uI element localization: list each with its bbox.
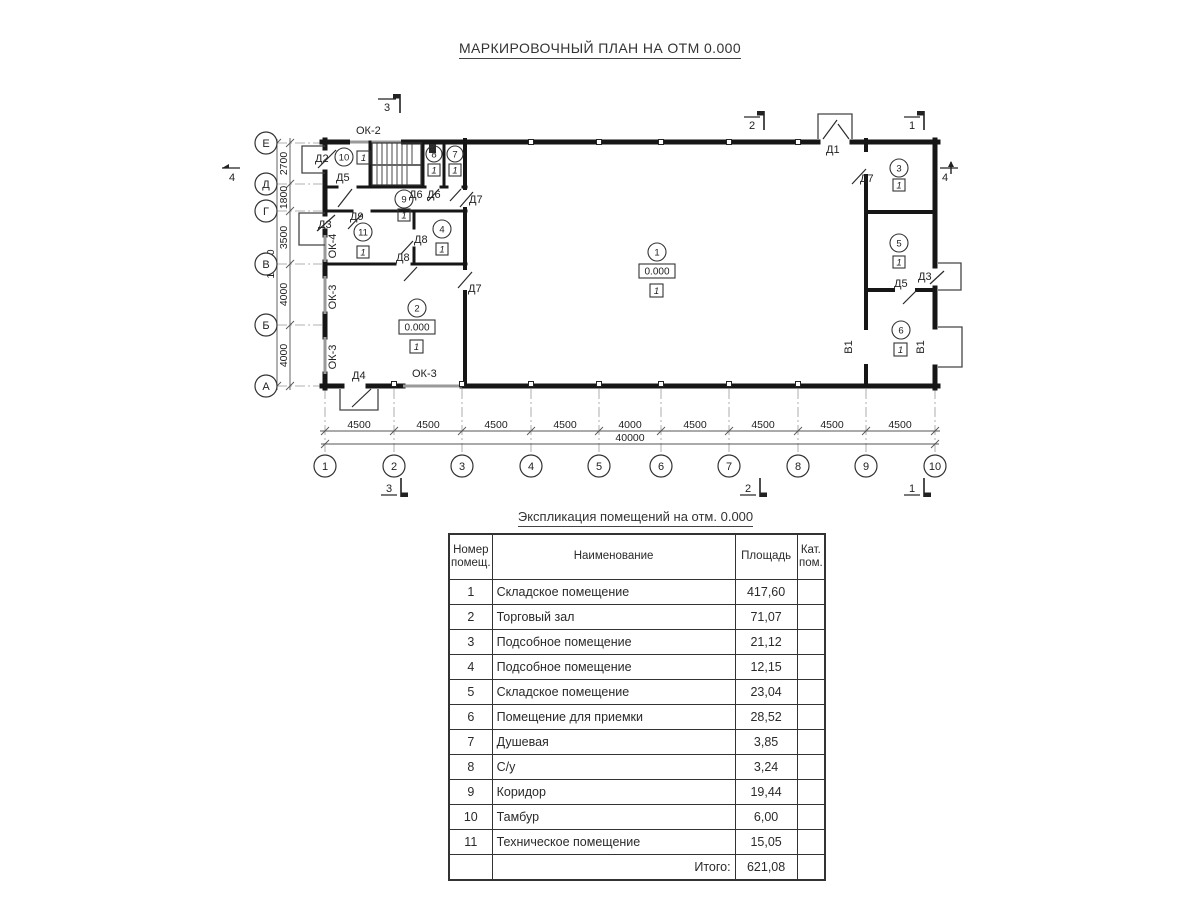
- dim-col-8: 4500: [888, 419, 912, 431]
- marker-10: 1: [361, 153, 366, 164]
- table-row: 9Коридор19,44: [449, 780, 825, 805]
- cell-name: Подсобное помещение: [492, 630, 735, 655]
- room-number-3: 3: [896, 164, 901, 175]
- table-row: 5Складское помещение23,04: [449, 680, 825, 705]
- header-room-number: Номер помещ.: [449, 534, 492, 580]
- marker-5: 1: [896, 258, 901, 269]
- room-number-9: 9: [401, 195, 406, 206]
- table-row: 6Помещение для приемки28,52: [449, 705, 825, 730]
- cell-cat: [797, 755, 825, 780]
- cell-area: 15,05: [735, 830, 797, 855]
- header-name: Наименование: [492, 534, 735, 580]
- grid-col-2: 2: [391, 461, 397, 473]
- stairs: [372, 143, 421, 185]
- room-number-6: 6: [898, 326, 903, 337]
- section-2-bottom: 2: [745, 483, 751, 495]
- marker-6: 1: [898, 345, 903, 356]
- cell-num: 11: [449, 830, 492, 855]
- cell-area: 417,60: [735, 580, 797, 605]
- dim-row-3: 4000: [278, 283, 290, 307]
- cell-name: Подсобное помещение: [492, 655, 735, 680]
- total-label: Итого:: [492, 855, 735, 881]
- door-label-d8-a: Д8: [414, 234, 428, 246]
- cell-num: 8: [449, 755, 492, 780]
- room-number-4: 4: [439, 225, 444, 236]
- dim-row-1: 1800: [278, 186, 290, 210]
- dimension-texts: 2700 1800 3500 4000 4000 16000 4500 4500…: [265, 152, 912, 444]
- cell-name: Коридор: [492, 780, 735, 805]
- dim-col-3: 4500: [553, 419, 577, 431]
- door-label-d5-b: Д5: [894, 278, 908, 290]
- cell-area: 28,52: [735, 705, 797, 730]
- cell-name: Душевая: [492, 730, 735, 755]
- floor-plan: ОК-2 Д2 Д5 Д9 Д3 ОК-4 ОК-3 ОК-3 Д4 ОК-3 …: [0, 0, 1200, 505]
- cell-cat: [797, 830, 825, 855]
- door-label-d7-c: Д7: [860, 173, 874, 185]
- cell-cat: [797, 805, 825, 830]
- grid-col-6: 6: [658, 461, 664, 473]
- cell-cat: [797, 780, 825, 805]
- section-4-right: 4: [942, 172, 948, 184]
- table-row: 11Техническое помещение15,05: [449, 830, 825, 855]
- grid-col-1: 1: [322, 461, 328, 473]
- grid-col-9: 9: [863, 461, 869, 473]
- marker-3: 1: [896, 181, 901, 192]
- cell-cat: [797, 680, 825, 705]
- cell-empty: [449, 855, 492, 881]
- cell-name: Торговый зал: [492, 605, 735, 630]
- window-label-ok2: ОК-2: [356, 125, 381, 137]
- cell-num: 2: [449, 605, 492, 630]
- grid-col-10: 10: [929, 461, 941, 473]
- marker-2: 1: [414, 342, 419, 353]
- dim-row-0: 2700: [278, 152, 290, 176]
- window-label-ok3-c: ОК-3: [412, 368, 437, 380]
- cell-name: Техническое помещение: [492, 830, 735, 855]
- door-label-d6-a: Д6: [409, 189, 423, 201]
- gate-label-v1-right: В1: [915, 340, 927, 353]
- room-number-8: 8: [431, 150, 436, 161]
- cell-area: 23,04: [735, 680, 797, 705]
- door-label-d4: Д4: [352, 370, 366, 382]
- grid-row-e: Е: [262, 138, 269, 150]
- grid-row-d: Д: [262, 179, 270, 191]
- cell-area: 3,85: [735, 730, 797, 755]
- cell-area: 12,15: [735, 655, 797, 680]
- table-row: 7Душевая3,85: [449, 730, 825, 755]
- marker-11: 1: [360, 248, 365, 259]
- cell-area: 21,12: [735, 630, 797, 655]
- cell-num: 7: [449, 730, 492, 755]
- section-4-left: 4: [229, 172, 235, 184]
- room-number-7: 7: [452, 150, 457, 161]
- table-row: 10Тамбур6,00: [449, 805, 825, 830]
- section-3-bottom: 3: [386, 483, 392, 495]
- marker-4: 1: [439, 245, 444, 256]
- marker-7: 1: [452, 166, 457, 177]
- grid-row-v: В: [262, 259, 269, 271]
- cell-num: 5: [449, 680, 492, 705]
- room-number-5: 5: [896, 239, 901, 250]
- grid-col-4: 4: [528, 461, 534, 473]
- page: { "title": "МАРКИРОВОЧНЫЙ ПЛАН НА ОТМ 0.…: [0, 0, 1200, 900]
- cell-area: 3,24: [735, 755, 797, 780]
- dim-row-4: 4000: [278, 344, 290, 368]
- cell-name: Помещение для приемки: [492, 705, 735, 730]
- door-label-d8-b: Д8: [396, 252, 410, 264]
- cell-name: Складское помещение: [492, 580, 735, 605]
- grid-centerlines: [277, 143, 935, 452]
- dim-col-2: 4500: [484, 419, 508, 431]
- cell-cat: [797, 855, 825, 881]
- cell-name: С/у: [492, 755, 735, 780]
- dim-col-6: 4500: [751, 419, 775, 431]
- cell-num: 4: [449, 655, 492, 680]
- elevation-room-1: 0.000: [644, 267, 669, 278]
- table-header-row: Номер помещ. Наименование Площадь Кат. п…: [449, 534, 825, 580]
- table-row: 8С/у3,24: [449, 755, 825, 780]
- room-number-1: 1: [654, 248, 659, 259]
- cell-num: 6: [449, 705, 492, 730]
- cell-cat: [797, 630, 825, 655]
- cell-cat: [797, 655, 825, 680]
- table-title: Экспликация помещений на отм. 0.000: [448, 509, 823, 524]
- table-row: 2Торговый зал71,07: [449, 605, 825, 630]
- table-row: 4Подсобное помещение12,15: [449, 655, 825, 680]
- cell-num: 3: [449, 630, 492, 655]
- room-number-11: 11: [358, 228, 368, 239]
- door-label-d1: Д1: [826, 144, 840, 156]
- header-category: Кат. пом.: [797, 534, 825, 580]
- section-3-top: 3: [384, 102, 390, 114]
- dim-col-0: 4500: [347, 419, 371, 431]
- grid-col-8: 8: [795, 461, 801, 473]
- cell-cat: [797, 580, 825, 605]
- window-label-ok4: ОК-4: [327, 234, 339, 259]
- cell-cat: [797, 705, 825, 730]
- marker-1: 1: [654, 286, 659, 297]
- gate-label-v1-left: В1: [843, 340, 855, 353]
- grid-row-g: Г: [263, 206, 269, 218]
- cell-area: 6,00: [735, 805, 797, 830]
- total-value: 621,08: [735, 855, 797, 881]
- grid-col-7: 7: [726, 461, 732, 473]
- marker-8: 1: [431, 166, 436, 177]
- cell-name: Складское помещение: [492, 680, 735, 705]
- table-row: 3Подсобное помещение21,12: [449, 630, 825, 655]
- window-label-ok3-b: ОК-3: [327, 345, 339, 370]
- marker-9: 1: [401, 211, 406, 222]
- door-label-d6-b: Д6: [427, 189, 441, 201]
- room-number-2: 2: [414, 304, 419, 315]
- section-1-top: 1: [909, 120, 915, 132]
- door-label-d7-b: Д7: [468, 283, 482, 295]
- door-label-d3-right: Д3: [918, 271, 932, 283]
- table-row: 1Складское помещение417,60: [449, 580, 825, 605]
- cell-area: 71,07: [735, 605, 797, 630]
- cell-num: 10: [449, 805, 492, 830]
- cell-name: Тамбур: [492, 805, 735, 830]
- grid-col-5: 5: [596, 461, 602, 473]
- room-explication-table: Номер помещ. Наименование Площадь Кат. п…: [448, 533, 826, 881]
- dim-row-2: 3500: [278, 226, 290, 250]
- door-label-d7-a: Д7: [469, 194, 483, 206]
- window-label-ok3-a: ОК-3: [327, 285, 339, 310]
- cell-cat: [797, 730, 825, 755]
- dim-col-1: 4500: [416, 419, 440, 431]
- plan-labels: ОК-2 Д2 Д5 Д9 Д3 ОК-4 ОК-3 ОК-3 Д4 ОК-3 …: [315, 125, 932, 382]
- grid-row-a: А: [262, 381, 270, 393]
- door-label-d2: Д2: [315, 153, 329, 165]
- grid-col-3: 3: [459, 461, 465, 473]
- door-label-d3-left: Д3: [318, 219, 332, 231]
- door-label-d5: Д5: [336, 172, 350, 184]
- table-total-row: Итого:621,08: [449, 855, 825, 881]
- grid-row-b: Б: [262, 320, 269, 332]
- dim-col-5: 4500: [683, 419, 707, 431]
- section-1-bottom: 1: [909, 483, 915, 495]
- dim-col-total: 40000: [615, 432, 644, 444]
- cell-num: 1: [449, 580, 492, 605]
- cell-cat: [797, 605, 825, 630]
- header-area: Площадь: [735, 534, 797, 580]
- room-number-10: 10: [339, 153, 350, 164]
- cell-area: 19,44: [735, 780, 797, 805]
- section-2-top: 2: [749, 120, 755, 132]
- elevation-room-2: 0.000: [404, 323, 429, 334]
- cell-num: 9: [449, 780, 492, 805]
- door-label-d9: Д9: [350, 211, 364, 223]
- dim-col-4: 4000: [618, 419, 642, 431]
- dim-col-7: 4500: [820, 419, 844, 431]
